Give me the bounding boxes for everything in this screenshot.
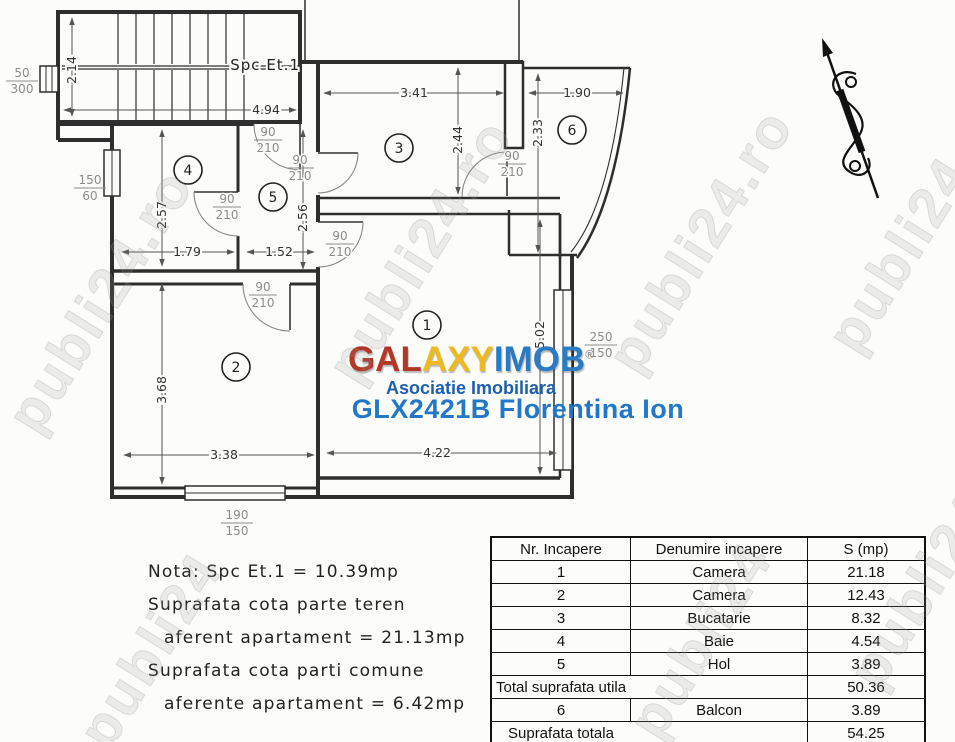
svg-text:50: 50 (14, 66, 29, 80)
staircase-label: Spc Et.1 (230, 56, 300, 74)
table-row: 2 Camera 12.43 (491, 584, 925, 607)
dim-stair-width: 4.94 (252, 102, 280, 117)
door-label: 90210 (498, 149, 526, 179)
window-left (104, 150, 120, 196)
svg-text:150: 150 (226, 524, 249, 538)
doors (194, 124, 507, 331)
room-5: 5 (259, 183, 287, 211)
window-label-stair: 50300 (6, 66, 38, 96)
svg-text:300: 300 (11, 82, 34, 96)
svg-text:210: 210 (329, 245, 352, 259)
svg-text:6: 6 (568, 123, 577, 139)
note-line: aferent apartament = 21.13mp (148, 622, 466, 655)
cell-name: Balcon (631, 699, 808, 722)
table-row: 5 Hol 3.89 (491, 653, 925, 676)
total-value: 54.25 (808, 722, 926, 742)
logo-part-gal: GAL (348, 340, 422, 379)
svg-text:3: 3 (395, 141, 404, 157)
svg-text:90: 90 (292, 153, 307, 167)
cell-nr: 4 (491, 630, 631, 653)
door-label: 90210 (326, 229, 354, 259)
window-bottom (185, 486, 285, 500)
note-line: Suprafata cota parte teren (148, 589, 466, 622)
svg-text:1: 1 (423, 318, 432, 334)
total-utila-value: 50.36 (808, 676, 926, 699)
cell-nr: 1 (491, 561, 631, 584)
svg-text:90: 90 (504, 149, 519, 163)
window-label-bottom: 190150 (221, 508, 253, 538)
cell-nr: 5 (491, 653, 631, 676)
svg-text:90: 90 (219, 192, 234, 206)
cell-name: Baie (631, 630, 808, 653)
registered-mark: ® (585, 347, 594, 361)
svg-text:4: 4 (184, 163, 193, 179)
cell-area: 3.89 (808, 653, 926, 676)
table-row: 4 Baie 4.54 (491, 630, 925, 653)
cell-name: Camera (631, 561, 808, 584)
window-label-left: 15060 (74, 173, 106, 203)
cell-nr: 2 (491, 584, 631, 607)
dim-room1-width: 4.22 (423, 445, 451, 460)
total-label: Suprafata totala (491, 722, 808, 742)
dim-room2-width: 3.38 (210, 447, 238, 462)
areas-table: Nr. Incapere Denumire incapere S (mp) 1 … (490, 536, 926, 742)
svg-text:210: 210 (257, 141, 280, 155)
note-line: aferente apartament = 6.42mp (148, 688, 466, 721)
north-arrow-icon (822, 38, 878, 198)
note-line: Nota: Spc Et.1 = 10.39mp (148, 556, 466, 589)
svg-text:210: 210 (501, 165, 524, 179)
cell-area: 21.18 (808, 561, 926, 584)
door-bucatarie (318, 153, 358, 193)
svg-text:210: 210 (289, 169, 312, 183)
door-label: 90210 (213, 192, 241, 222)
cell-nr: 3 (491, 607, 631, 630)
room-1: 1 (413, 311, 441, 339)
svg-text:150: 150 (79, 173, 102, 187)
table-row: 3 Bucatarie 8.32 (491, 607, 925, 630)
table-header-row: Nr. Incapere Denumire incapere S (mp) (491, 537, 925, 561)
col-header: S (mp) (808, 537, 926, 561)
dim-baie-width: 1.79 (173, 244, 201, 259)
svg-text:90: 90 (260, 125, 275, 139)
svg-text:190: 190 (226, 508, 249, 522)
cell-area: 3.89 (808, 699, 926, 722)
total-utila-label: Total suprafata utila (491, 676, 808, 699)
cell-name: Hol (631, 653, 808, 676)
room-2: 2 (222, 353, 250, 381)
agency-logo: GALAXYIMOB® Asociatie Imobiliara (336, 342, 606, 397)
door-label: 90210 (249, 280, 277, 310)
table-total-utila-row: Total suprafata utila 50.36 (491, 676, 925, 699)
room-3: 3 (385, 134, 413, 162)
table-total-row: Suprafata totala 54.25 (491, 722, 925, 742)
svg-text:90: 90 (255, 280, 270, 294)
notes-block: Nota: Spc Et.1 = 10.39mp Suprafata cota … (148, 556, 466, 721)
dim-hol-height: 2.56 (295, 204, 310, 232)
agency-logo-wordmark: GALAXYIMOB® (336, 342, 606, 377)
logo-part-imob: IMOB (494, 340, 585, 379)
floorplan-listing-image: Spc Et.1 (0, 0, 955, 742)
dim-room2-height: 3.68 (154, 376, 169, 404)
cell-area: 12.43 (808, 584, 926, 607)
door-label: 90210 (254, 125, 282, 155)
cell-name: Camera (631, 584, 808, 607)
table-row: 6 Balcon 3.89 (491, 699, 925, 722)
svg-text:210: 210 (216, 208, 239, 222)
window-stair (40, 66, 58, 92)
dim-stair-height: 2.14 (64, 56, 79, 84)
dim-balcon-width: 1.90 (563, 85, 591, 100)
logo-part-axy: AXY (422, 340, 494, 379)
dim-balcon-height: 2.33 (530, 119, 545, 147)
listing-code: GLX2421B Florentina Ion (318, 394, 718, 425)
door-labels: 90210 90210 90210 90210 90210 90210 (213, 125, 526, 310)
svg-text:5: 5 (269, 190, 278, 206)
col-header: Denumire incapere (631, 537, 808, 561)
dim-baie-height: 2.57 (154, 201, 169, 229)
cell-name: Bucatarie (631, 607, 808, 630)
cell-area: 8.32 (808, 607, 926, 630)
cell-area: 4.54 (808, 630, 926, 653)
table-row: 1 Camera 21.18 (491, 561, 925, 584)
room-4: 4 (174, 156, 202, 184)
door-label: 90210 (286, 153, 314, 183)
note-line: Suprafata cota parti comune (148, 655, 466, 688)
col-header: Nr. Incapere (491, 537, 631, 561)
room-6: 6 (558, 116, 586, 144)
svg-text:2: 2 (232, 360, 241, 376)
svg-text:210: 210 (252, 296, 275, 310)
svg-text:60: 60 (82, 189, 97, 203)
svg-text:90: 90 (332, 229, 347, 243)
cell-nr: 6 (491, 699, 631, 722)
dim-room3-height: 2.44 (450, 126, 465, 154)
dim-hol-width: 1.52 (265, 244, 293, 259)
window-labels: 50300 15060 190150 250150 (6, 66, 617, 538)
dim-room3-width: 3.41 (400, 85, 428, 100)
